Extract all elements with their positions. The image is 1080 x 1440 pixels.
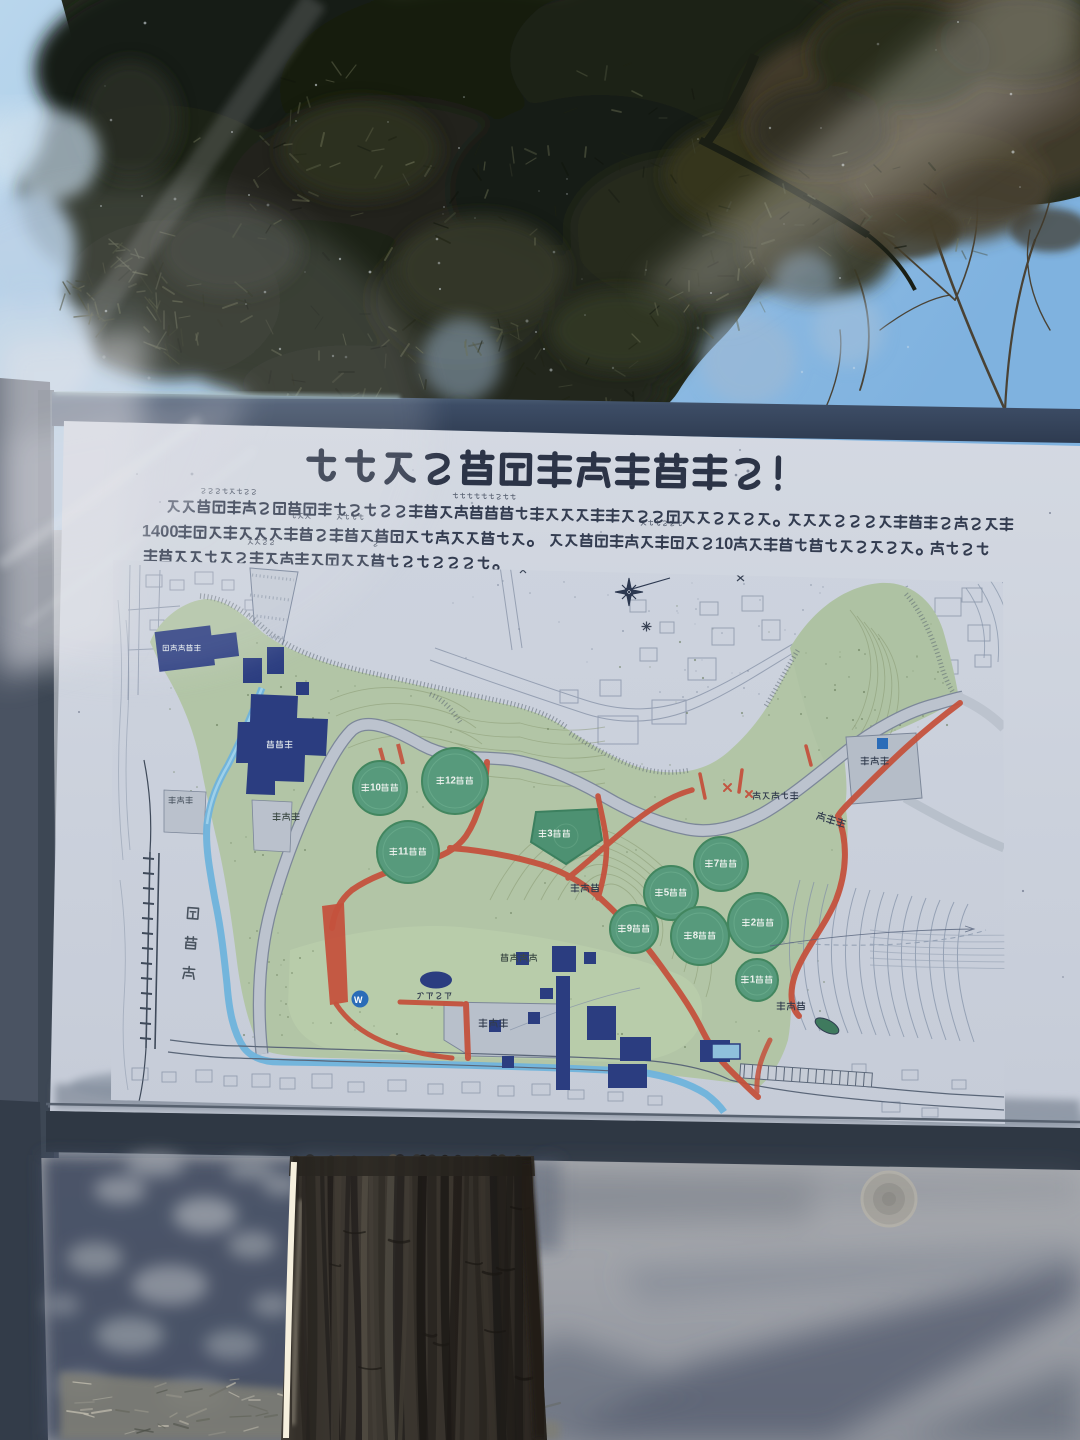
svg-text:2: 2 bbox=[751, 918, 756, 929]
svg-text:1: 1 bbox=[750, 975, 756, 986]
svg-text:8: 8 bbox=[693, 931, 699, 942]
svg-text:10: 10 bbox=[370, 783, 381, 794]
svg-text:9: 9 bbox=[627, 924, 633, 935]
svg-text:12: 12 bbox=[445, 776, 456, 787]
svg-text:3: 3 bbox=[547, 829, 553, 840]
svg-text:11: 11 bbox=[398, 847, 409, 858]
svg-text:10: 10 bbox=[715, 535, 734, 553]
svg-text:W: W bbox=[354, 995, 363, 1005]
svg-text:5: 5 bbox=[664, 888, 670, 899]
svg-text:7: 7 bbox=[714, 859, 719, 870]
